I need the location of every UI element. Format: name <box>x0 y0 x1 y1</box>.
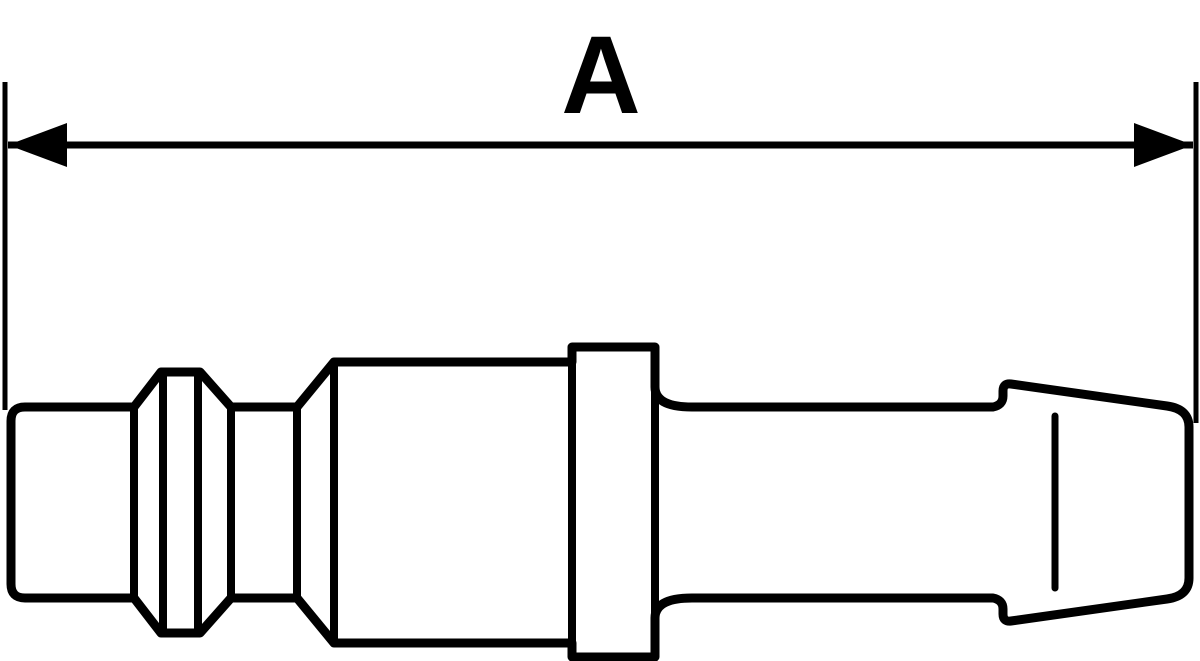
dimension-arrowhead-right-icon <box>1134 123 1193 167</box>
technical-drawing-page: A <box>0 0 1200 661</box>
technical-drawing-canvas: A <box>0 0 1200 661</box>
dimension-arrowhead-left-icon <box>8 123 67 167</box>
dimension-label-a: A <box>561 14 640 137</box>
plug-outline <box>11 347 1189 657</box>
